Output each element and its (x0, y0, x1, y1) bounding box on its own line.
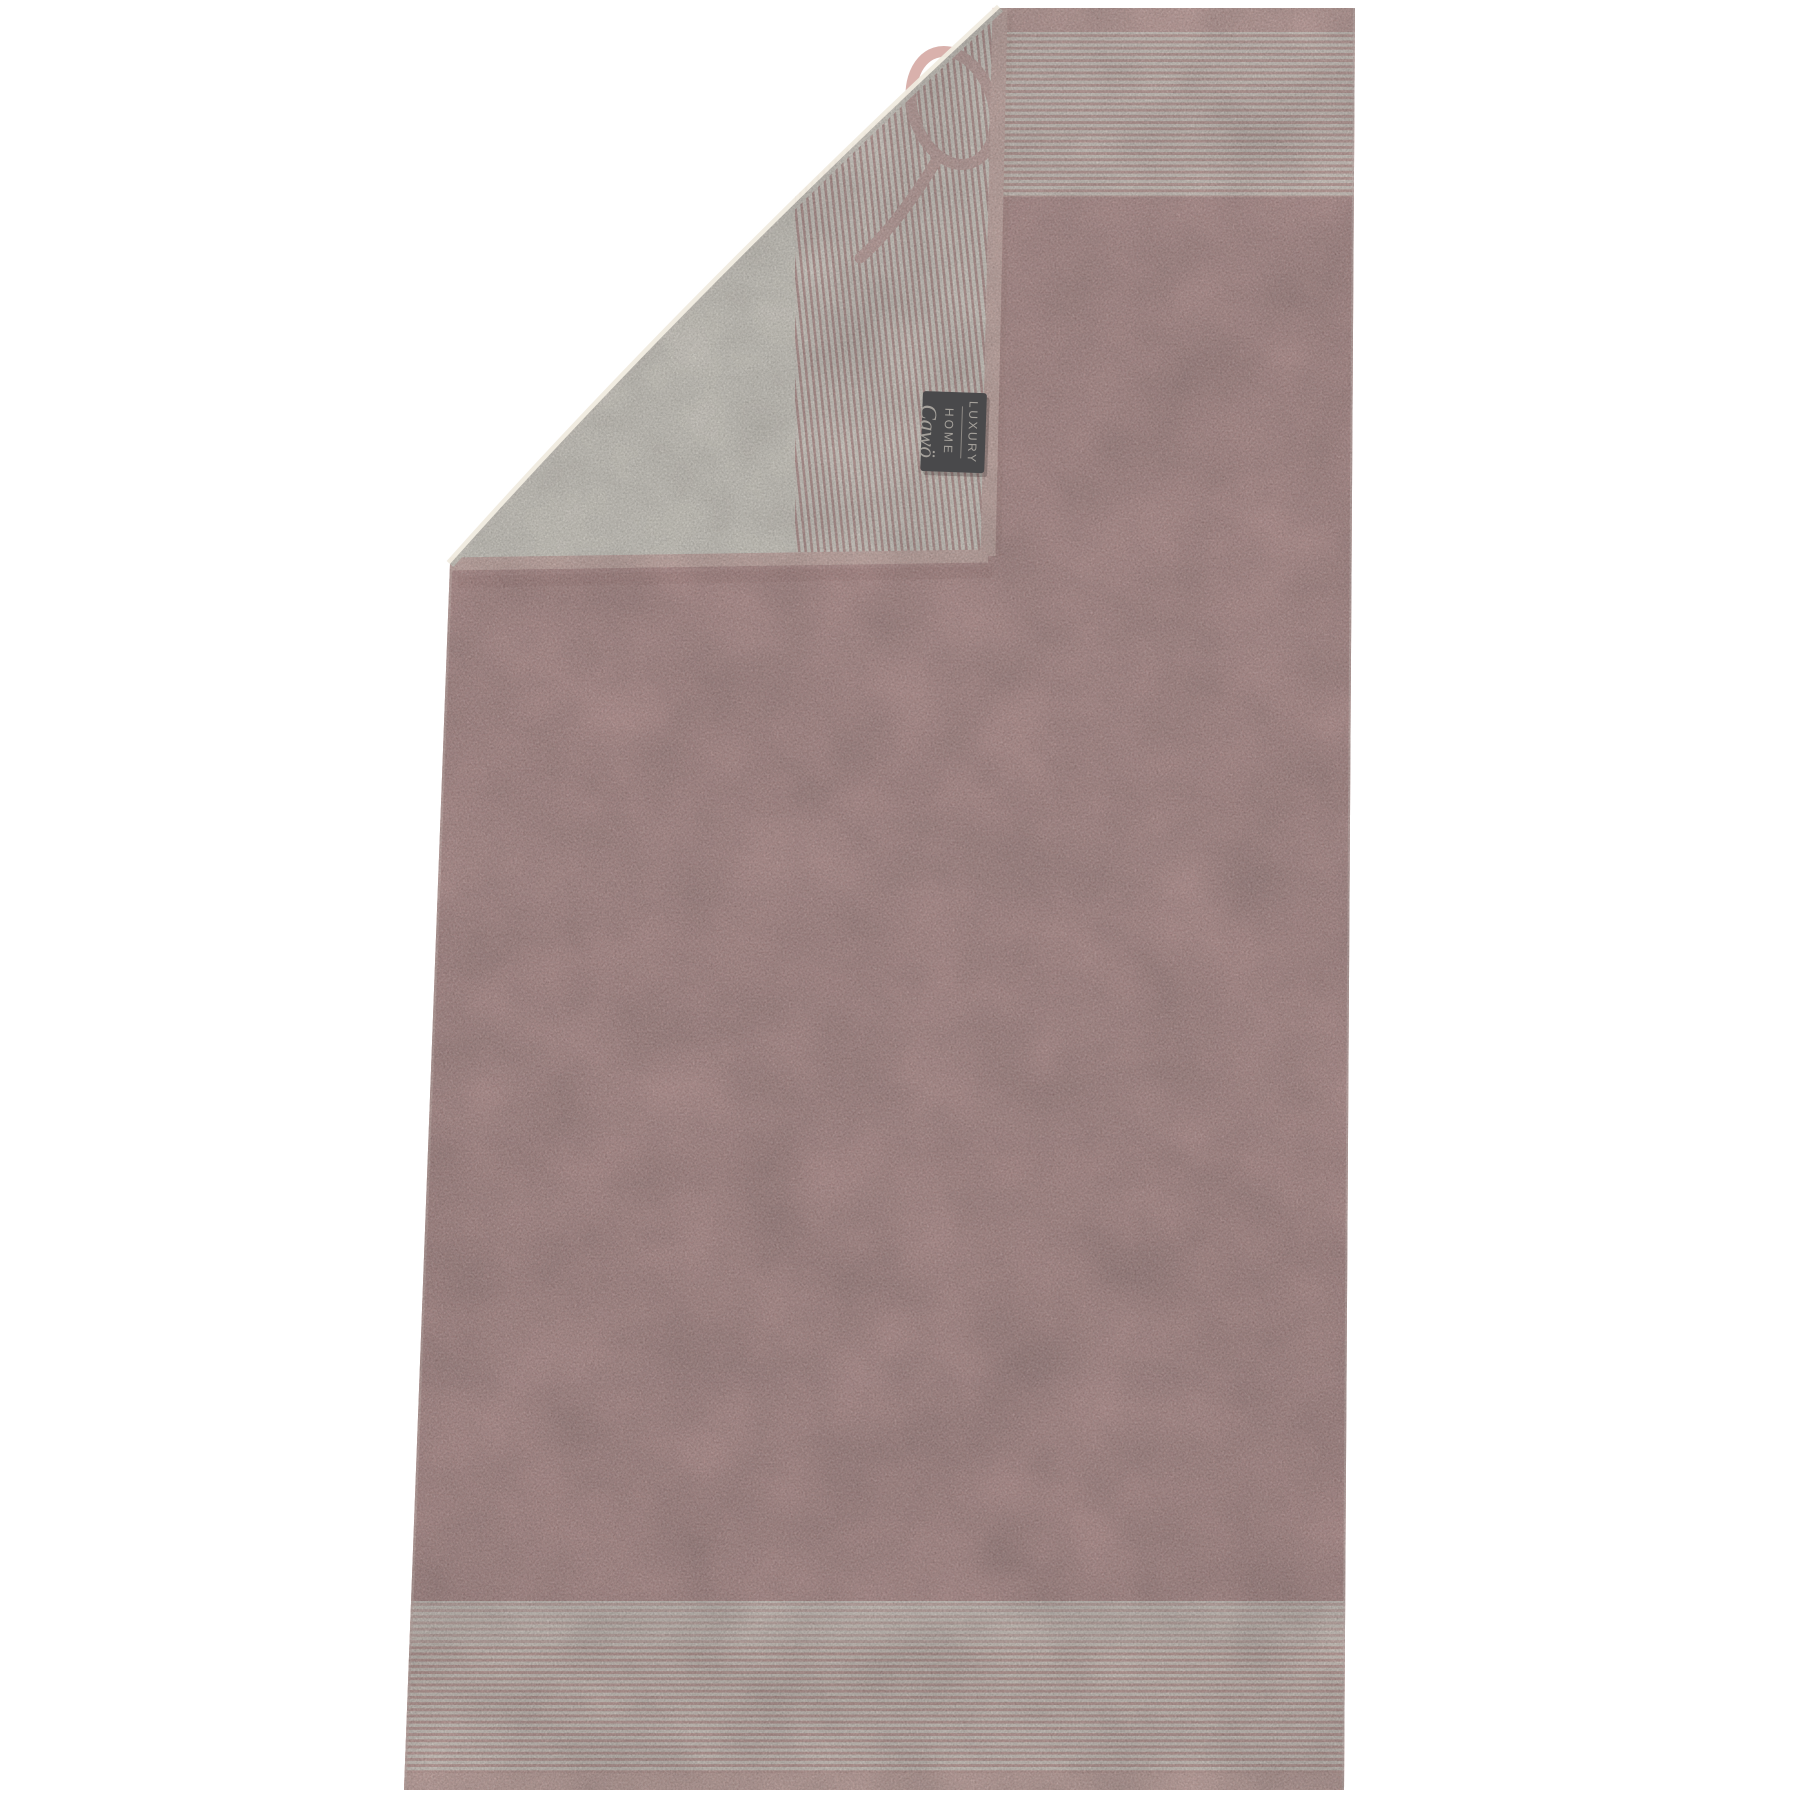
towel-product-photo: LUXURY HOME Cawö (0, 0, 1800, 1800)
fabric-texture (390, 0, 1365, 1800)
label-line1: LUXURY (964, 401, 980, 465)
brand-label-tag: LUXURY HOME Cawö (914, 391, 990, 477)
label-brand-name: Cawö (915, 404, 942, 459)
product-image: LUXURY HOME Cawö (0, 0, 1800, 1800)
label-line2: HOME (941, 408, 957, 456)
